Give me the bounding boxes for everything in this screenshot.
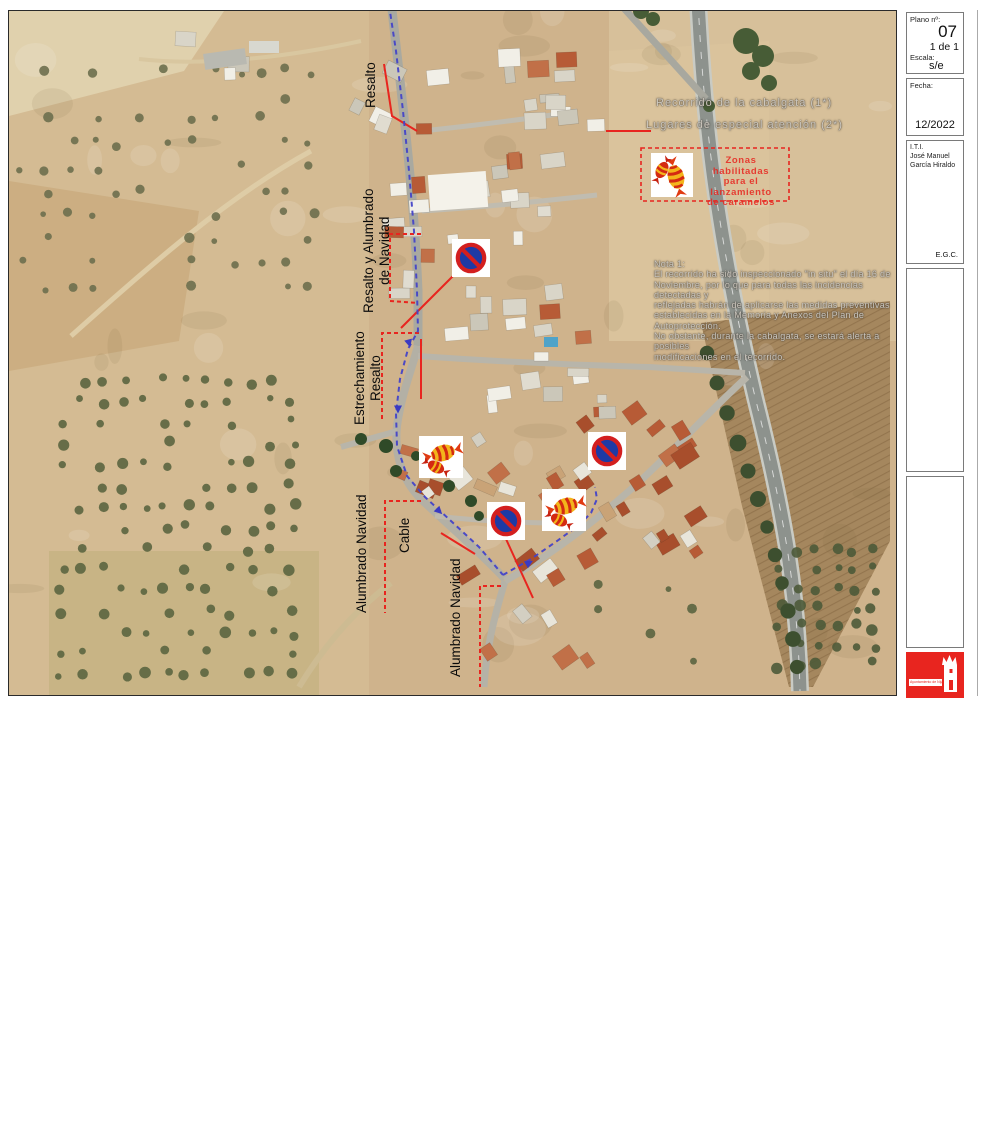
- fecha-value: 12/2022: [907, 119, 963, 131]
- note-title: Nota 1:: [654, 259, 897, 269]
- legend-candy-zone-text: Zonas habilitadaspara el lanzamientode c…: [697, 156, 785, 209]
- note-body: El recorrido ha sido inspeccionado "in s…: [654, 269, 897, 362]
- author-first-name: José Manuel: [910, 153, 950, 160]
- ayuntamiento-logo: Ayuntamiento de Níjar: [906, 652, 964, 698]
- map-label-resalto-alumbrado: Resalto y Alumbradode Navidad: [361, 188, 393, 313]
- author-last-name: García Hiraldo: [910, 162, 955, 169]
- fecha-label: Fecha:: [910, 81, 933, 90]
- map-label-cable: Cable: [397, 518, 413, 553]
- plan-sheet: Resalto Resalto y Alumbradode Navidad Es…: [0, 0, 1000, 707]
- author-title: I.T.I.: [910, 144, 923, 151]
- candy-icon-1: [419, 436, 464, 479]
- map-label-resalto: Resalto: [363, 62, 379, 108]
- plano-label: Plano nº:: [910, 15, 940, 24]
- titleblock-fecha: Fecha: 12/2022: [906, 78, 964, 136]
- map-label-estrechamiento: EstrechamientoResalto: [352, 331, 384, 425]
- legend-route-label: Recorrido de la cabalgata (1*): [656, 97, 832, 109]
- titleblock-author: I.T.I. José Manuel García Hiraldo E.G.C.: [906, 140, 964, 264]
- castle-crown-icon: [906, 652, 964, 698]
- no-parking-sign-1: [452, 239, 490, 277]
- titleblock-plano: Plano nº: 07 1 de 1 Escala: s/e: [906, 12, 964, 74]
- candy-icon-2: [542, 489, 587, 532]
- page-frame-line: [977, 10, 978, 696]
- map-note: Nota 1: El recorrido ha sido inspecciona…: [654, 259, 897, 362]
- plano-number: 07: [938, 22, 957, 42]
- map-label-alumbrado-bottom: Alumbrado Navidad: [448, 558, 464, 677]
- no-parking-sign-2: [588, 432, 626, 470]
- reviewer-initials: E.G.C.: [935, 250, 958, 259]
- escala-value: s/e: [929, 60, 944, 72]
- titleblock-plan-title: Plan de Autoprotección, Emergencias y Ev…: [906, 476, 964, 648]
- titleblock-plano-de: Plano de: Itinerario de Cabalgata en Fer…: [906, 268, 964, 472]
- no-parking-sign-3: [487, 502, 525, 540]
- logo-text: Ayuntamiento de Níjar: [909, 679, 942, 686]
- candy-icon-legend: [650, 153, 693, 198]
- map-label-alumbrado-left: Alumbrado Navidad: [354, 494, 370, 613]
- plano-pages: 1 de 1: [930, 41, 959, 53]
- legend-attention-label: Lugares de especial atención (2*): [646, 119, 843, 131]
- map-area: Resalto Resalto y Alumbradode Navidad Es…: [8, 10, 897, 696]
